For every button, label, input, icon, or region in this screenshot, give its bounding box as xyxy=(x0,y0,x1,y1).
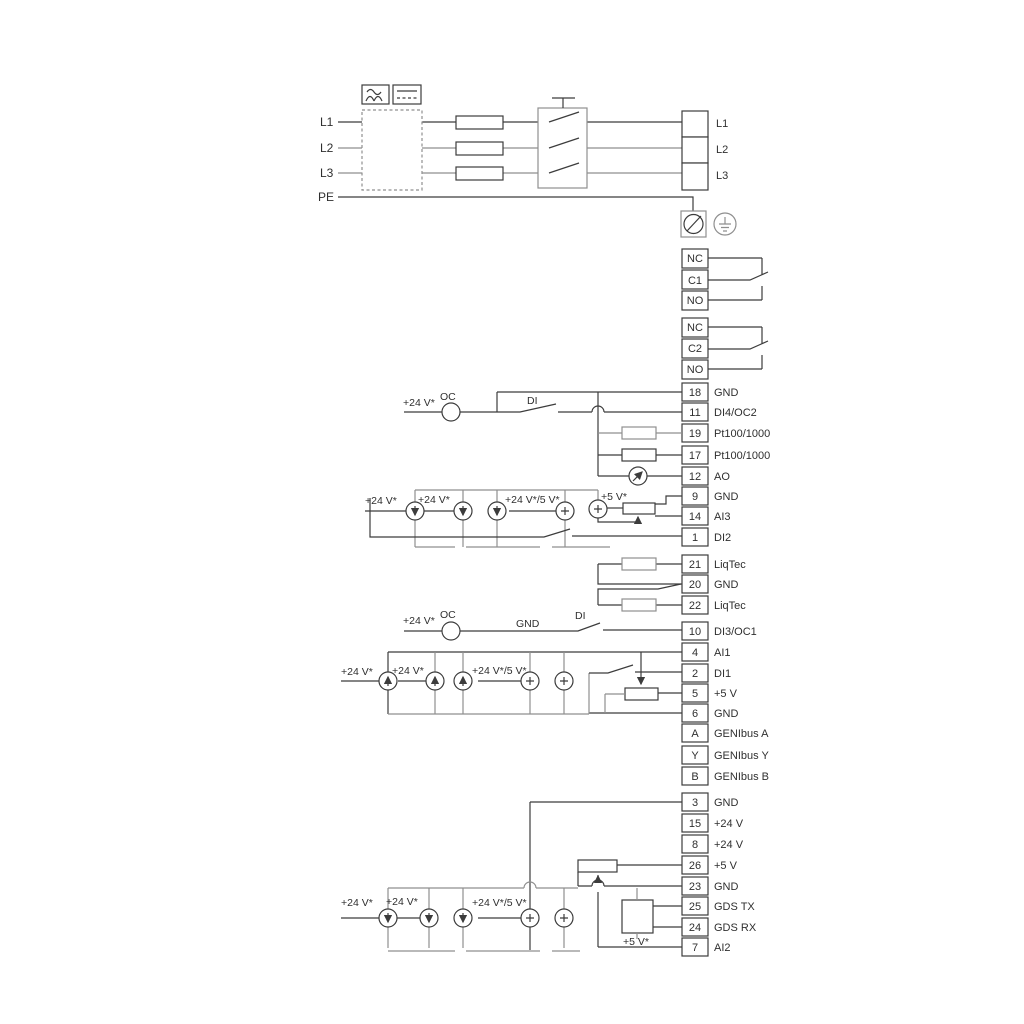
terminal-function: GENIbus A xyxy=(714,728,769,740)
mains-terminal-block: L1 L2 L3 xyxy=(682,111,728,190)
dc-lines-icon xyxy=(393,85,421,104)
terminal-row-22: 22 LiqTec xyxy=(682,596,746,614)
v24-label: +24 V* xyxy=(403,397,435,409)
relay1-contact-icon xyxy=(708,258,768,300)
potentiometer-icon xyxy=(625,688,658,700)
terminal-row-25: 25 GDS TX xyxy=(682,897,755,915)
terminal-function: AI3 xyxy=(714,511,731,523)
terminal-function: GND xyxy=(714,387,739,399)
rectifier-icon xyxy=(362,85,389,104)
v24-v5-label: +24 V*/5 V* xyxy=(472,665,527,677)
current-source-icon xyxy=(454,672,472,690)
relay2-contact-icon xyxy=(708,327,768,369)
terminal-l1 xyxy=(682,111,708,137)
terminal-number: 25 xyxy=(689,901,701,913)
resistor-icon xyxy=(622,449,656,461)
terminal-function: GND xyxy=(714,881,739,893)
terminal-function: DI4/OC2 xyxy=(714,407,757,419)
terminal-number: 24 xyxy=(689,922,701,934)
terminal-function: AI2 xyxy=(714,942,731,954)
terminal-function: +5 V xyxy=(714,688,738,700)
v24-label: +24 V* xyxy=(403,615,435,627)
fuse-l3 xyxy=(456,167,503,180)
fuse-l2 xyxy=(456,142,503,155)
terminal-number: 10 xyxy=(689,626,701,638)
terminal-l3 xyxy=(682,163,708,190)
terminal-number: 6 xyxy=(692,708,698,720)
terminal-number: Y xyxy=(691,750,699,762)
relay1-section: NC C1 NO xyxy=(682,249,768,310)
terminal-number: 23 xyxy=(689,881,701,893)
v24-v5-label: +24 V*/5 V* xyxy=(472,897,527,909)
terminal-row-21: 21 LiqTec xyxy=(682,555,746,573)
io-terminal-strip: 18 GND 11 DI4/OC2 19 Pt100/1000 17 Pt100… xyxy=(682,383,770,956)
terminal-row-14: 14 AI3 xyxy=(682,507,731,525)
terminal-function: GND xyxy=(714,708,739,720)
open-collector-icon xyxy=(442,622,460,640)
terminal-number: 19 xyxy=(689,428,701,440)
main-switch-icon xyxy=(538,98,587,188)
relay2-no-label: NO xyxy=(687,364,704,376)
terminal-row-26: 26 +5 V xyxy=(682,856,738,874)
current-source-icon xyxy=(379,672,397,690)
terminal-number: 9 xyxy=(692,491,698,503)
wiring-diagram-page: { "power": { "inputs": ["L1", "L2", "L3"… xyxy=(0,0,1024,1024)
terminal-number: 11 xyxy=(689,407,700,419)
voltage-source-icon xyxy=(589,500,607,518)
v24-label: +24 V* xyxy=(386,896,418,908)
relay1-no-label: NO xyxy=(687,295,704,307)
ai3-di2-circuit: +24 V* +24 V* +24 V*/5 V* +5 V* xyxy=(365,490,682,547)
resistor-icon xyxy=(622,558,656,570)
terminal-row-4: 4 AI1 xyxy=(682,643,731,661)
terminal-row-11: 11 DI4/OC2 xyxy=(682,403,757,421)
liqtec-circuit xyxy=(598,558,682,611)
input-label-pe: PE xyxy=(318,190,334,204)
terminal-row-18: 18 GND xyxy=(682,383,739,401)
resistor-icon xyxy=(622,599,656,611)
di3-oc1-circuit: +24 V* OC GND DI xyxy=(403,609,682,640)
di-label: DI xyxy=(527,395,538,407)
terminal-row-a: A GENIbus A xyxy=(682,724,769,742)
terminal-row-9: 9 GND xyxy=(682,487,739,505)
terminal-row-b: B GENIbus B xyxy=(682,767,769,785)
di1-switch-icon xyxy=(589,665,682,673)
fuse-l1 xyxy=(456,116,503,129)
protective-earth-icon xyxy=(714,213,736,235)
terminal-function: +24 V xyxy=(714,839,744,851)
resistor-icon xyxy=(622,427,656,439)
pot-to-gnd9 xyxy=(655,496,682,504)
terminal-number: 18 xyxy=(689,387,701,399)
terminal-number: 20 xyxy=(689,579,701,591)
terminal-number: 12 xyxy=(689,471,701,483)
terminal-number: 17 xyxy=(689,450,701,462)
current-source-icon xyxy=(488,502,506,520)
terminal-number: A xyxy=(691,728,699,740)
pot-left-wire xyxy=(605,694,625,713)
converter-dashed-box xyxy=(362,110,422,190)
terminal-number: B xyxy=(691,771,698,783)
pt100-branch-19 xyxy=(598,427,682,439)
terminal-l2 xyxy=(682,137,708,163)
terminal-number: 1 xyxy=(692,532,698,544)
terminal-number: 2 xyxy=(692,668,698,680)
mains-input-section: L1 L2 L3 PE xyxy=(318,85,736,237)
oc-label: OC xyxy=(440,391,456,403)
fuse-icons xyxy=(456,116,503,180)
di-switch-icon xyxy=(460,623,682,631)
current-source-icon xyxy=(426,672,444,690)
terminal-row-2: 2 DI1 xyxy=(682,664,731,682)
gds-sensor-icon: +5 V* xyxy=(622,888,682,948)
terminal-number: 4 xyxy=(692,647,698,659)
diagram-canvas: L1 L2 L3 PE xyxy=(0,0,1024,1024)
input-label-l1: L1 xyxy=(320,115,334,129)
voltage-source-icon xyxy=(555,672,573,690)
terminal-row-17: 17 Pt100/1000 xyxy=(682,446,770,464)
terminal-function: GENIbus B xyxy=(714,771,769,783)
voltage-source-icon xyxy=(521,672,539,690)
terminal-number: 8 xyxy=(692,839,698,851)
terminal-function: DI3/OC1 xyxy=(714,626,757,638)
relay2-section: NC C2 NO xyxy=(682,318,768,379)
relay1-nc-label: NC xyxy=(687,253,703,265)
terminal-function: GENIbus Y xyxy=(714,750,769,762)
terminal-number: 15 xyxy=(689,818,701,830)
v24-label: +24 V* xyxy=(341,666,373,678)
terminal-row-5: 5 +5 V xyxy=(682,684,738,702)
v5-label: +5 V* xyxy=(601,491,627,503)
current-source-icon xyxy=(454,502,472,520)
terminal-row-24: 24 GDS RX xyxy=(682,918,757,936)
input-label-l3: L3 xyxy=(320,166,334,180)
current-source-icon xyxy=(379,909,397,927)
gnd23-wire xyxy=(578,872,682,886)
v24-label: +24 V* xyxy=(392,665,424,677)
terminal-number: 26 xyxy=(689,860,701,872)
terminal-row-23: 23 GND xyxy=(682,877,739,895)
terminal-label-l1: L1 xyxy=(716,118,728,130)
relay1-c-label: C1 xyxy=(688,275,702,287)
terminal-function: GND xyxy=(714,579,739,591)
potentiometer-icon xyxy=(578,860,617,872)
terminal-number: 14 xyxy=(689,511,701,523)
terminal-function: AO xyxy=(714,471,730,483)
gnd-wire-label: GND xyxy=(516,618,540,630)
terminal-function: LiqTec xyxy=(714,600,746,612)
terminal-function: +24 V xyxy=(714,818,744,830)
relay2-c-label: C2 xyxy=(688,343,702,355)
terminal-label-l2: L2 xyxy=(716,144,728,156)
terminal-function: AI1 xyxy=(714,647,731,659)
terminal-number: 22 xyxy=(689,600,701,612)
pe-wire xyxy=(338,197,693,211)
open-collector-icon xyxy=(442,403,460,421)
v24-label: +24 V* xyxy=(341,897,373,909)
terminal-function: LiqTec xyxy=(714,559,746,571)
oc-label: OC xyxy=(440,609,456,621)
di-switch-icon xyxy=(460,404,556,412)
analog-output-meter-icon xyxy=(598,467,682,485)
terminal-function: Pt100/1000 xyxy=(714,450,770,462)
terminal-row-3: 3 GND xyxy=(682,793,739,811)
terminal-number: 3 xyxy=(692,797,698,809)
gnd-top-wire xyxy=(497,392,682,412)
terminal-number: 7 xyxy=(692,942,698,954)
terminal-number: 21 xyxy=(689,559,701,571)
di4-oc2-circuit: +24 V* OC DI xyxy=(403,391,682,485)
terminal-function: DI1 xyxy=(714,668,731,680)
terminal-function: +5 V xyxy=(714,860,738,872)
current-source-icon xyxy=(454,909,472,927)
current-source-icon xyxy=(420,909,438,927)
terminal-function: Pt100/1000 xyxy=(714,428,770,440)
terminal-row-19: 19 Pt100/1000 xyxy=(682,424,770,442)
terminal-row-20: 20 GND xyxy=(682,575,739,593)
potentiometer-icon xyxy=(623,503,655,514)
ai2-gds-circuit: +24 V* +24 V* +24 V*/5 V* +5 V* xyxy=(341,802,682,951)
terminal-function: DI2 xyxy=(714,532,731,544)
terminal-label-l3: L3 xyxy=(716,170,728,182)
v5-label: +5 V* xyxy=(623,936,649,948)
voltage-source-icon xyxy=(556,502,574,520)
terminal-row-15: 15 +24 V xyxy=(682,814,744,832)
screw-terminal-icon xyxy=(681,211,706,237)
terminal-row-12: 12 AO xyxy=(682,467,730,485)
terminal-function: GND xyxy=(714,491,739,503)
relay2-nc-label: NC xyxy=(687,322,703,334)
terminal-row-y: Y GENIbus Y xyxy=(682,746,769,764)
terminal-function: GDS TX xyxy=(714,901,755,913)
v24-v5-label: +24 V*/5 V* xyxy=(505,494,560,506)
terminal-function: GDS RX xyxy=(714,922,757,934)
terminal-function: GND xyxy=(714,797,739,809)
ai1-di1-circuit: +24 V* +24 V* +24 V*/5 V* xyxy=(341,652,682,714)
v24-label: +24 V* xyxy=(418,494,450,506)
terminal-number: 5 xyxy=(692,688,698,700)
terminal-row-1: 1 DI2 xyxy=(682,528,731,546)
voltage-source-icon xyxy=(555,909,573,927)
pot-wiper xyxy=(598,517,638,523)
pt100-branch-17 xyxy=(598,449,682,461)
input-label-l2: L2 xyxy=(320,141,334,155)
terminal-row-8: 8 +24 V xyxy=(682,835,744,853)
voltage-source-icon xyxy=(521,909,539,927)
terminal-row-6: 6 GND xyxy=(682,704,739,722)
current-source-icon xyxy=(406,502,424,520)
terminal-row-10: 10 DI3/OC1 xyxy=(682,622,757,640)
terminal-row-7: 7 AI2 xyxy=(682,938,731,956)
di-label: DI xyxy=(575,610,586,622)
